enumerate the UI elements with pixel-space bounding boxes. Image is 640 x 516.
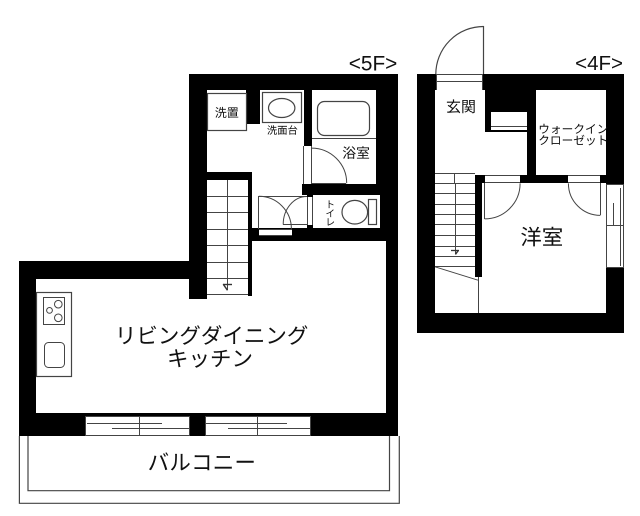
svg-text:<4F>: <4F> — [575, 52, 623, 75]
svg-text:<5F>: <5F> — [349, 52, 398, 75]
